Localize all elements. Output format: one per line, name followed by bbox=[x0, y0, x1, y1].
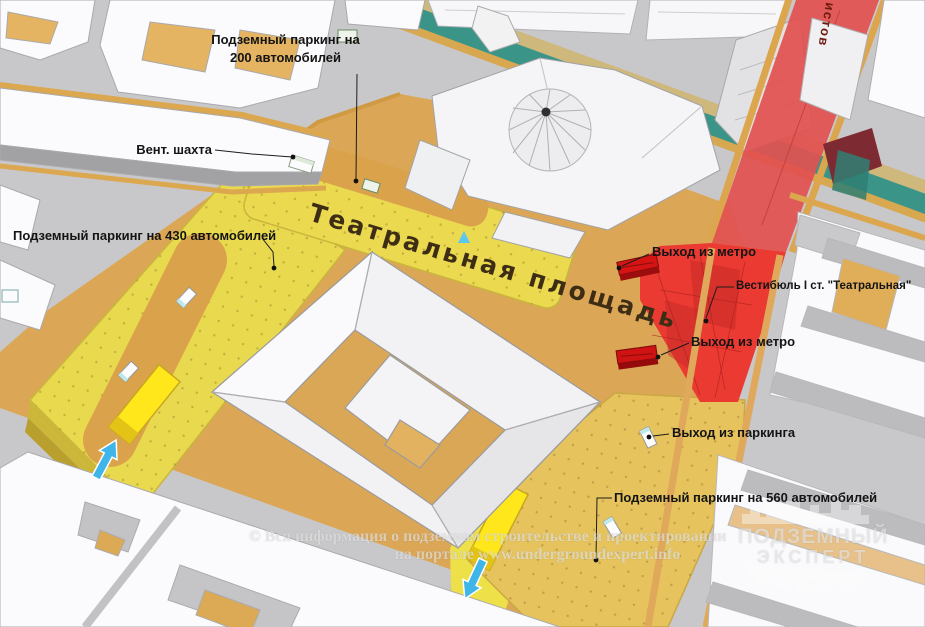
theatre-dome bbox=[509, 89, 591, 171]
label-vent-shaft: Вент. шахта bbox=[118, 141, 212, 159]
label-parking-200: Подземный паркинг на 200 автомобилей bbox=[198, 31, 373, 66]
watermark-line-2: на портале www.undergroundexpert.info bbox=[340, 546, 735, 564]
label-parking-430: Подземный паркинг на 430 автомобилей bbox=[13, 227, 276, 245]
logo-line-1: ПОДЗЕМНЫЙ bbox=[735, 526, 891, 548]
label-metro-exit-2: Выход из метро bbox=[691, 333, 795, 351]
label-vestibule: Вестибюль I ст. "Театральная" bbox=[736, 279, 911, 295]
label-metro-exit-1: Выход из метро bbox=[652, 243, 756, 261]
logo-watermark: ПОДЗЕМНЫЙ ЭКСПЕРТ bbox=[735, 494, 891, 568]
site-plan: Театральная площадь истов Подземный парк… bbox=[0, 0, 925, 627]
watermark-line-1: © Вся информация о подземном строительст… bbox=[240, 528, 735, 546]
logo-line-2: ЭКСПЕРТ bbox=[735, 548, 891, 568]
label-parking-exit: Выход из паркинга bbox=[672, 424, 795, 442]
